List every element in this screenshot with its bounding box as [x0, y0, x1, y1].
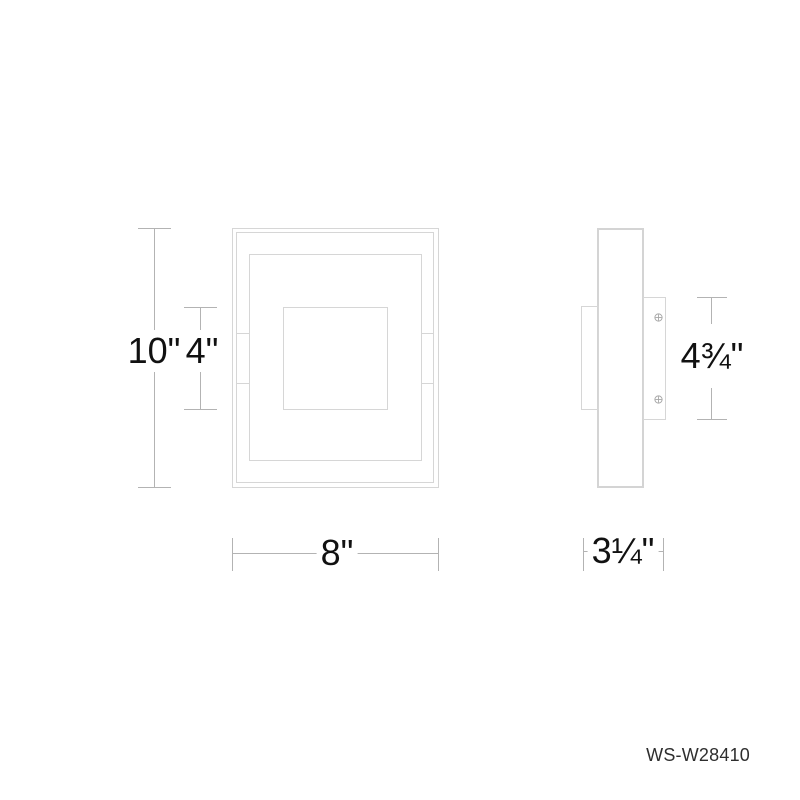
dimension-end-tick — [232, 538, 233, 571]
dimension-label-overall-width: 8" — [317, 532, 358, 574]
dimension-label-center-panel-height: 4" — [182, 330, 223, 372]
dimension-end-cap — [184, 307, 217, 308]
dimension-end-cap — [697, 297, 727, 298]
front-tab-right-top — [422, 333, 434, 334]
front-tab-left-bottom — [237, 383, 249, 384]
front-center-panel — [283, 307, 388, 410]
dimension-label-overall-height: 10" — [124, 330, 185, 372]
dimension-end-tick — [583, 538, 584, 571]
dimension-end-tick — [663, 538, 664, 571]
screw-icon — [654, 313, 663, 322]
dimension-end-cap — [138, 228, 171, 229]
dimension-end-cap — [138, 487, 171, 488]
dimension-label-overall-depth: 3¼" — [588, 530, 659, 572]
dimension-label-backplate-height: 4¾" — [677, 324, 748, 388]
screw-icon — [654, 395, 663, 404]
product-code: WS-W28410 — [600, 745, 750, 766]
dimension-end-cap — [697, 419, 727, 420]
dimension-drawing: 10" 4" 8" 3¼" 4¾" WS-W28410 — [0, 0, 800, 800]
dimension-end-cap — [184, 409, 217, 410]
side-body — [597, 228, 644, 488]
dimension-end-tick — [438, 538, 439, 571]
front-tab-left-top — [237, 333, 249, 334]
front-tab-right-bottom — [422, 383, 434, 384]
side-rear-housing — [581, 306, 599, 410]
